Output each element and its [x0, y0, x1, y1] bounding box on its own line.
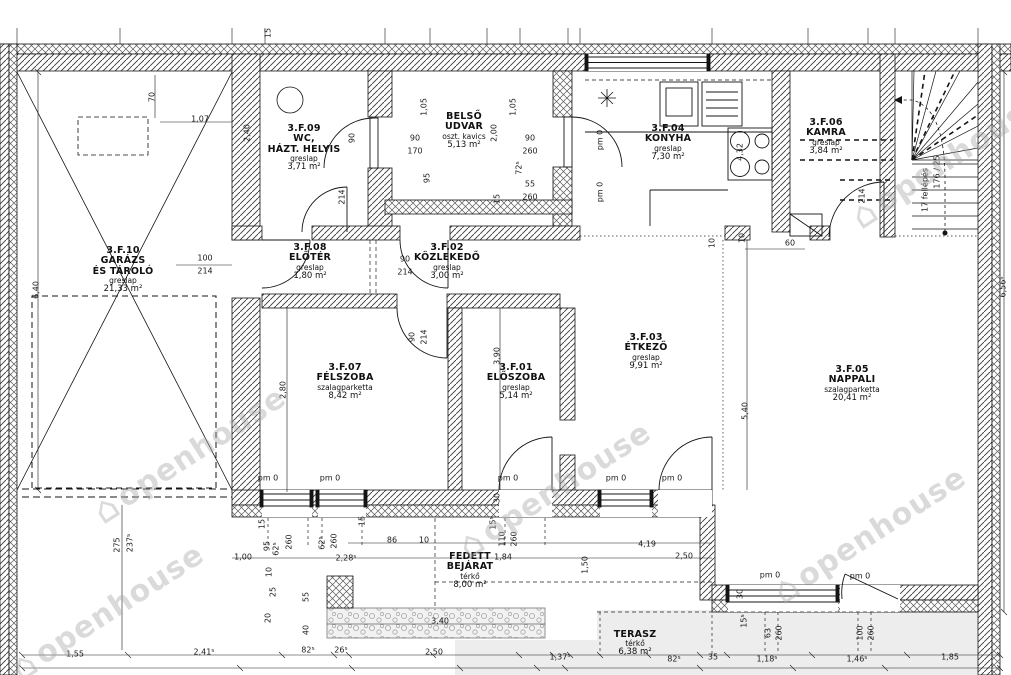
dimension-lines — [17, 28, 1007, 671]
doors — [262, 117, 898, 599]
door-felszoba — [397, 308, 447, 358]
floorplan-linework — [0, 0, 1011, 675]
garage-door — [22, 489, 232, 497]
dishwasher-icon — [702, 82, 742, 126]
door-eloter — [262, 240, 310, 288]
pebble-walkway — [327, 608, 545, 638]
windows — [260, 54, 839, 602]
door-kozlekedo — [400, 240, 448, 288]
oven-icon — [660, 82, 698, 126]
door-bejarat — [499, 437, 552, 490]
door-etkezo-terasz — [659, 437, 712, 490]
paving-zones — [327, 608, 984, 675]
window-top-kitchen — [585, 54, 710, 71]
wc-fixture — [277, 87, 303, 113]
sink-icon — [598, 89, 616, 107]
floor-plan-canvas: 3.F.10GARÁZSÉS TÁROLÓgreslap21,33 m²3.F.… — [0, 0, 1011, 675]
door-kamra — [829, 182, 884, 237]
wall-openings — [262, 54, 900, 612]
door-wc — [302, 187, 347, 232]
door-udvar-wc — [324, 118, 378, 168]
kamra-cabinet — [790, 214, 822, 236]
door-udvar-konyha — [564, 117, 622, 167]
kitchen-peninsula — [650, 190, 728, 226]
cooktop-icon — [728, 128, 772, 180]
